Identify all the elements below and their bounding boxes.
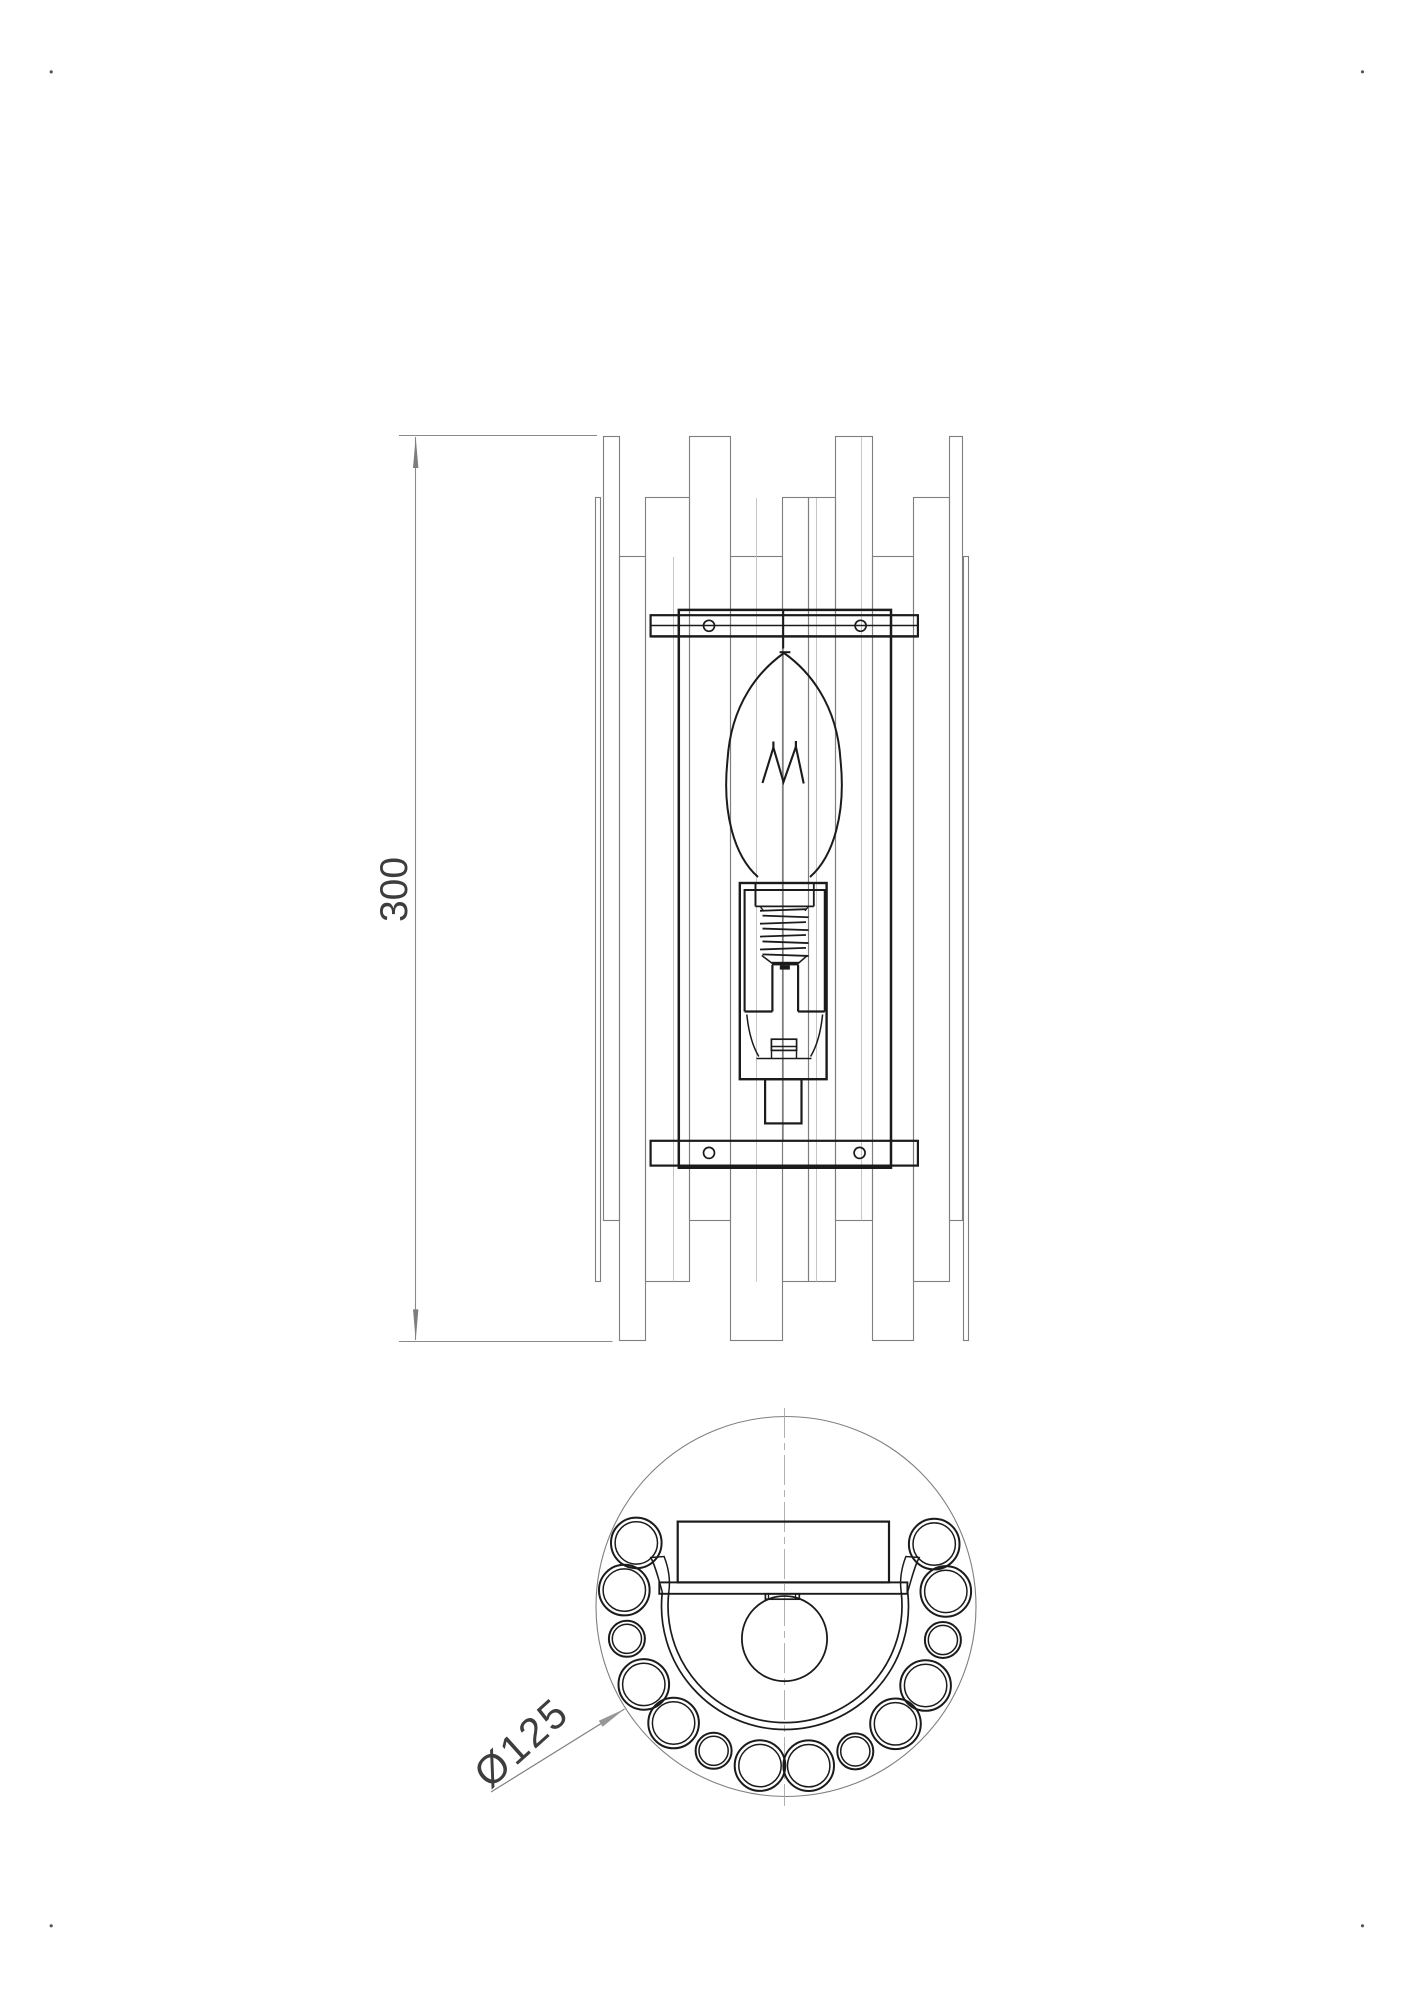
svg-text:Ø125: Ø125 [465, 1689, 578, 1797]
svg-text:300: 300 [373, 857, 416, 922]
